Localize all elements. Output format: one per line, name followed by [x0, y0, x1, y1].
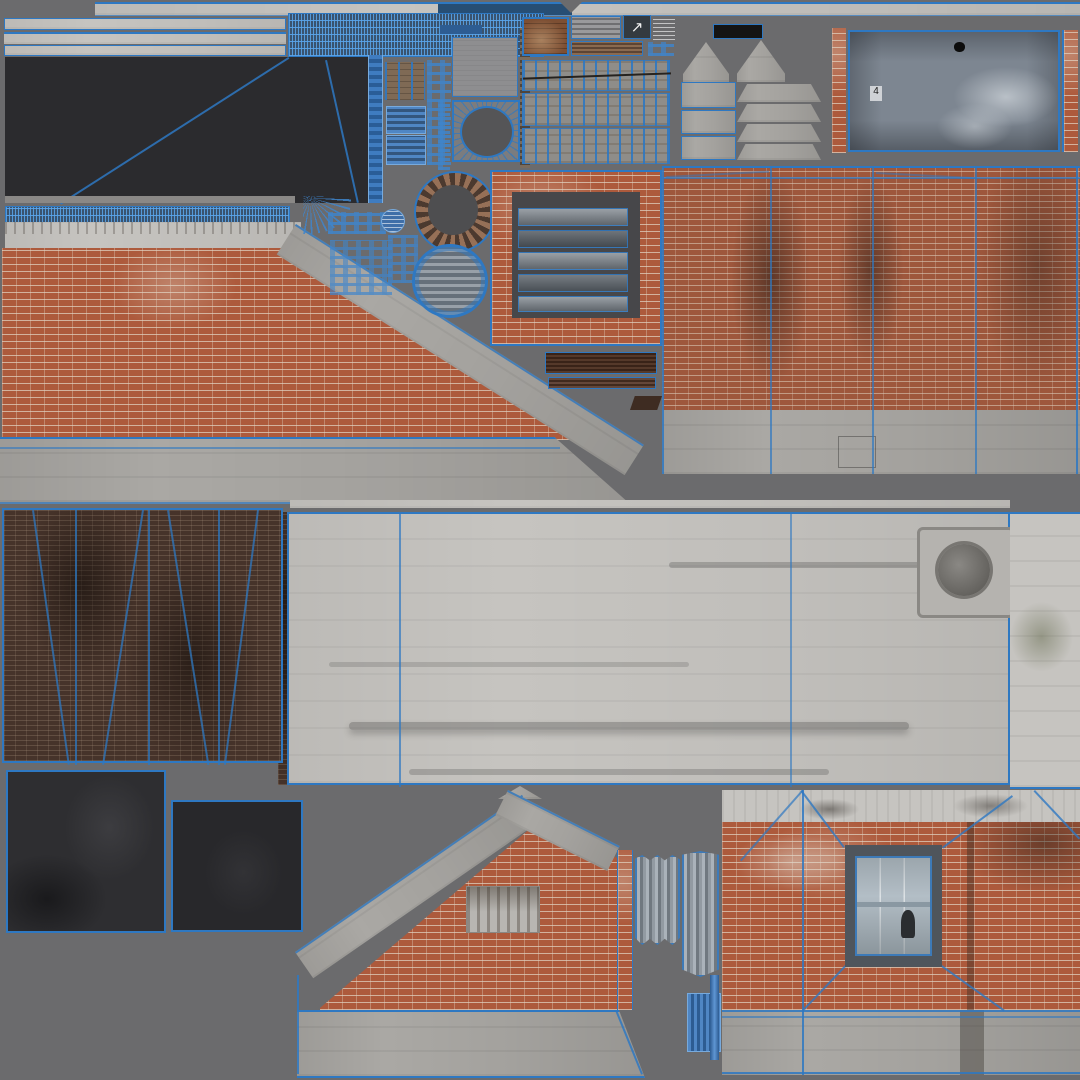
stacked-slab [681, 82, 736, 108]
uv-slant-line [224, 510, 259, 765]
slat-row-3 [522, 128, 670, 164]
gray-square-panel [452, 37, 518, 97]
vent-louver-bar [518, 274, 628, 292]
wall-concrete-base [662, 410, 1080, 474]
uv-line-v [399, 514, 401, 787]
awning-strip [737, 124, 821, 142]
plinth-medallion [938, 544, 990, 596]
window-sash-bar [857, 902, 930, 907]
uv-line-h [722, 1016, 1080, 1018]
roof-trim-strip-2 [4, 18, 286, 30]
vent-louver-bar [518, 252, 628, 270]
grunge-corner [962, 822, 1080, 892]
slab-number: 4 [873, 86, 879, 97]
rust-lintel-bar [545, 352, 657, 374]
front-wall-top-band [722, 790, 1080, 822]
cable-line [523, 72, 671, 79]
blue-strip-chip [710, 975, 719, 1060]
uv-diagonal-line [60, 57, 289, 205]
sign-fine-print [653, 16, 675, 40]
vent-louver-bar [518, 230, 628, 248]
efflorescence-patch [732, 832, 852, 892]
slab-hole [954, 42, 965, 52]
pipe-shadow [967, 822, 974, 1010]
uv-line-v [218, 510, 220, 765]
uv-pipe-column [368, 55, 383, 203]
uv-line-v [148, 510, 150, 765]
uv-line-v [1076, 166, 1078, 474]
slat-row-1 [522, 60, 670, 91]
bricked-window-panel [466, 886, 540, 933]
parapet-sliver [5, 196, 295, 203]
slat-row-2 [522, 93, 670, 126]
slab-number-tag: 4 [870, 86, 882, 101]
roof-trim-strip-long [95, 2, 1080, 16]
parapet-concrete-cap [5, 222, 301, 250]
uv-glyph-cluster [328, 212, 386, 234]
gable-base-band [297, 1010, 645, 1078]
center-wall-top-strip [290, 500, 1010, 508]
grime-streak [409, 769, 829, 775]
uv-bar-blue [440, 25, 482, 34]
tent-roof-piece [683, 42, 729, 82]
arrow-sign: ↗ [623, 15, 651, 39]
uv-line-h [662, 177, 1080, 179]
louver-panel-gray [571, 16, 621, 39]
brick-sliver [832, 28, 846, 153]
dark-brick-wall [2, 508, 283, 763]
uv-glyph-strip [438, 100, 450, 170]
vent-louver-bar [518, 208, 628, 226]
uv-globe-ornament [381, 209, 405, 233]
base-stain [960, 1010, 984, 1075]
parapet-base-band [0, 437, 630, 504]
grime-streak [329, 662, 689, 667]
uv-line-v [770, 166, 772, 474]
brick-jamb-strip [617, 850, 633, 1010]
uv-line-v [662, 166, 664, 474]
circle-in-square-uv [452, 100, 520, 162]
blue-striped-panel [386, 135, 426, 165]
grime-streak [349, 722, 909, 730]
roof-trim-strip-4 [4, 45, 286, 56]
center-wall-right-panel [1010, 512, 1080, 789]
wall-vent-brick-frame [490, 170, 662, 346]
uv-diagonal-line [325, 60, 359, 203]
uv-line-v [802, 790, 804, 1075]
plank-panel [385, 62, 425, 100]
dark-trapezoid-chip [630, 396, 662, 410]
corrugated-door-panel-2 [682, 851, 719, 977]
gray-blue-slab: 4 [848, 30, 1060, 152]
awning-strip [737, 84, 821, 102]
arrow-up-right-icon: ↗ [631, 19, 644, 36]
front-wall-island [722, 790, 1080, 1075]
trim-notch-triangle [560, 2, 582, 13]
uv-line-v [297, 975, 299, 1074]
blue-striped-panel [386, 106, 426, 134]
uv-slant-line [168, 510, 210, 765]
window-frame [845, 845, 942, 967]
ring-center [428, 185, 478, 235]
louver-disc [412, 244, 488, 318]
corrugated-door-panel-1 [635, 855, 680, 945]
brick-sliver [1062, 30, 1078, 152]
uv-line-v [790, 514, 792, 787]
tent-roof-piece [737, 40, 785, 82]
uv-line-v [975, 166, 977, 474]
roof-trim-strip-3 [4, 32, 286, 44]
louver-panel-rust [571, 41, 643, 56]
uv-slant-line [33, 510, 70, 765]
wall-plinth [917, 527, 1015, 618]
uv-slant-line [103, 510, 144, 765]
uv-line-v [872, 166, 874, 474]
center-concrete-wall [287, 512, 1010, 785]
cap-streaks [5, 222, 301, 234]
stacked-slab [681, 110, 736, 134]
rust-lintel-bar [548, 377, 656, 389]
roof-brick-slope [2, 248, 574, 440]
dark-floor-square-2 [171, 800, 303, 932]
uv-line-v [75, 510, 77, 765]
uv-glyph-cluster [648, 42, 674, 56]
awning-strip [737, 104, 821, 122]
uv-line-h [722, 1072, 1080, 1074]
awning-strip [737, 144, 821, 160]
rust-panel [522, 17, 569, 56]
wall-brick-field [662, 166, 1080, 412]
dark-backdrop-panel [5, 57, 378, 203]
uv-texture-atlas: ↗ 4 [0, 0, 1080, 1080]
vent-louver-bar [518, 296, 628, 312]
access-panel-outline [838, 436, 876, 468]
dark-floor-square-1 [6, 770, 166, 933]
right-brick-wall [662, 166, 1080, 474]
stacked-slab [681, 136, 736, 160]
black-panel [713, 24, 763, 39]
uv-glyph-cluster [330, 240, 392, 295]
uv-line [0, 447, 560, 449]
inscribed-circle [460, 106, 514, 158]
front-wall-base-band [722, 1010, 1080, 1075]
uv-line-h [722, 1010, 1080, 1012]
window-glass [855, 856, 932, 956]
round-vent-ring [414, 171, 496, 253]
window-silhouette [901, 910, 915, 938]
